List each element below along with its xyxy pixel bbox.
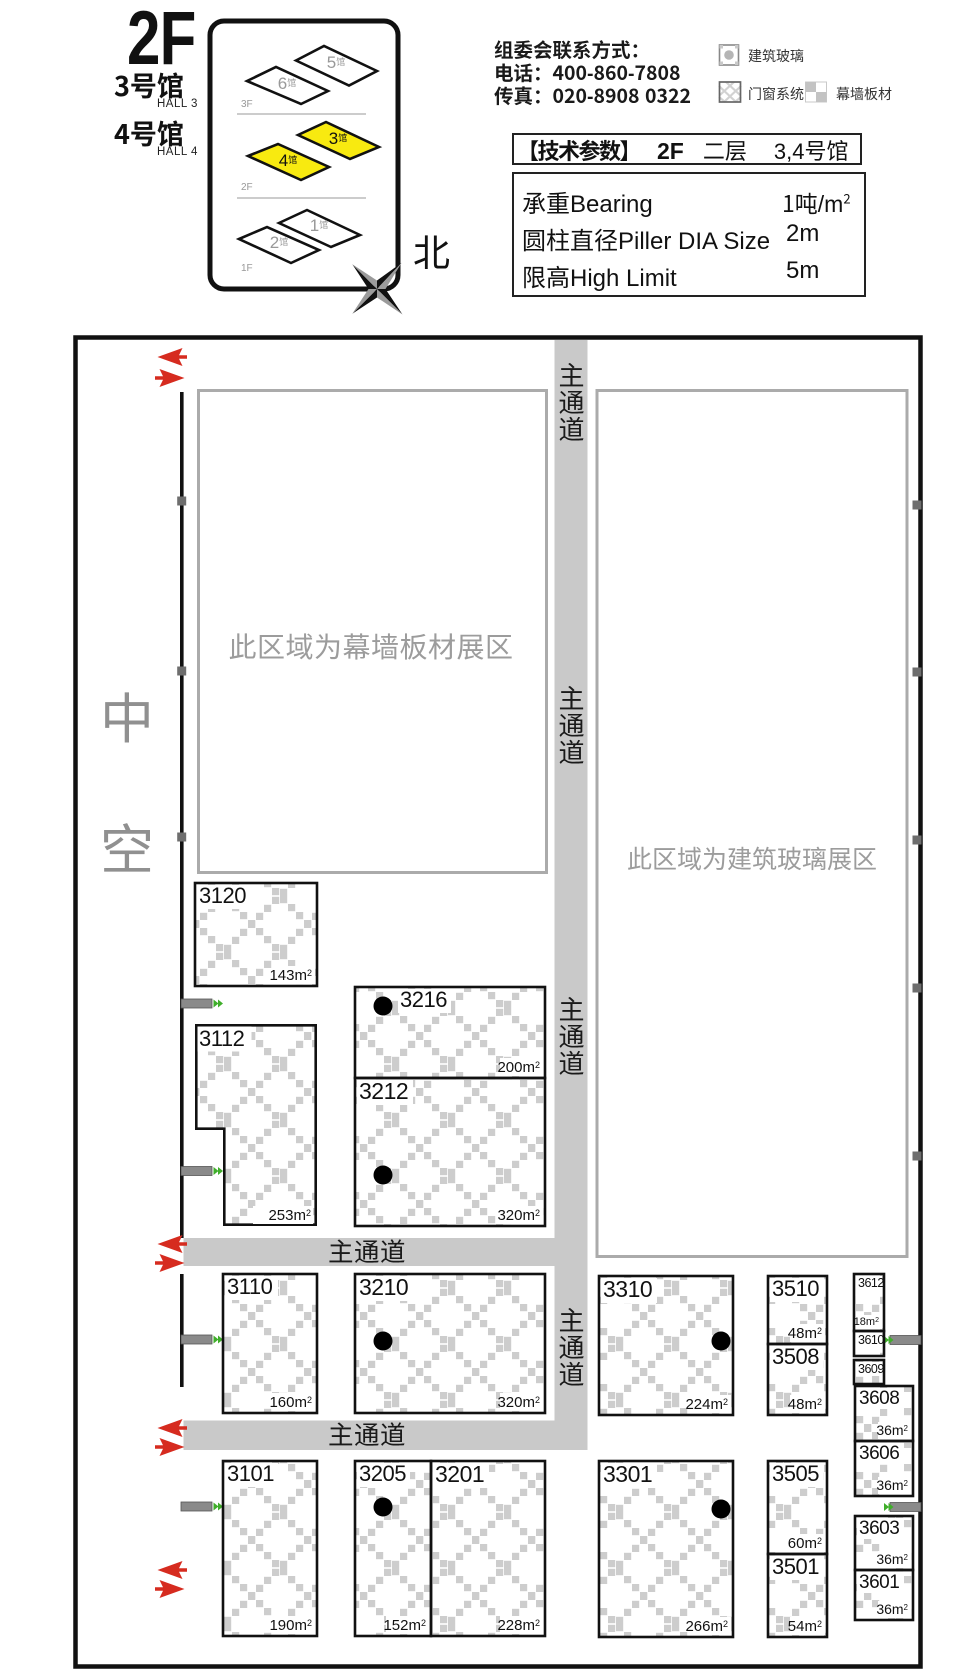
svg-text:3508: 3508 bbox=[772, 1344, 819, 1369]
svg-text:3606: 3606 bbox=[859, 1443, 899, 1464]
svg-text:3212: 3212 bbox=[359, 1078, 408, 1104]
svg-text:3F: 3F bbox=[241, 99, 253, 110]
svg-text:320m2: 320m2 bbox=[497, 1394, 540, 1411]
svg-text:190m2: 190m2 bbox=[269, 1617, 312, 1634]
svg-text:48m2: 48m2 bbox=[788, 1396, 822, 1413]
svg-text:道: 道 bbox=[558, 1355, 584, 1392]
svg-text:3120: 3120 bbox=[199, 883, 246, 908]
svg-text:224m2: 224m2 bbox=[685, 1396, 728, 1413]
svg-text:3216: 3216 bbox=[400, 987, 447, 1012]
svg-text:3205: 3205 bbox=[359, 1461, 406, 1486]
svg-text:3112: 3112 bbox=[199, 1026, 245, 1051]
svg-text:152m2: 152m2 bbox=[383, 1617, 426, 1634]
svg-text:空: 空 bbox=[100, 806, 154, 885]
svg-text:253m2: 253m2 bbox=[268, 1207, 311, 1224]
svg-text:143m2: 143m2 bbox=[269, 967, 312, 984]
svg-text:3210: 3210 bbox=[359, 1274, 408, 1300]
svg-text:160m2: 160m2 bbox=[269, 1394, 312, 1411]
svg-text:48m2: 48m2 bbox=[788, 1325, 822, 1342]
svg-text:3609: 3609 bbox=[858, 1362, 884, 1376]
svg-text:此区域为建筑玻璃展区: 此区域为建筑玻璃展区 bbox=[627, 840, 877, 876]
svg-text:3110: 3110 bbox=[227, 1274, 273, 1299]
svg-text:320m2: 320m2 bbox=[497, 1207, 540, 1224]
svg-text:3610: 3610 bbox=[858, 1333, 884, 1347]
svg-text:3501: 3501 bbox=[772, 1554, 819, 1579]
svg-text:60m2: 60m2 bbox=[788, 1535, 822, 1552]
svg-text:3201: 3201 bbox=[435, 1461, 484, 1487]
svg-text:266m2: 266m2 bbox=[685, 1618, 728, 1635]
svg-text:2F: 2F bbox=[241, 182, 253, 193]
svg-text:3612: 3612 bbox=[858, 1276, 884, 1290]
svg-text:228m2: 228m2 bbox=[497, 1617, 540, 1634]
svg-text:3101: 3101 bbox=[227, 1461, 274, 1486]
svg-text:主通道: 主通道 bbox=[328, 1232, 406, 1269]
svg-text:3505: 3505 bbox=[772, 1461, 819, 1486]
svg-text:中: 中 bbox=[100, 675, 154, 754]
svg-text:1F: 1F bbox=[241, 263, 253, 274]
svg-text:此区域为幕墙板材展区: 此区域为幕墙板材展区 bbox=[228, 626, 513, 666]
svg-text:3603: 3603 bbox=[859, 1518, 899, 1539]
svg-text:3601: 3601 bbox=[859, 1572, 899, 1593]
svg-text:北: 北 bbox=[413, 223, 450, 277]
svg-text:3510: 3510 bbox=[772, 1276, 819, 1301]
svg-text:3301: 3301 bbox=[603, 1461, 652, 1487]
svg-text:道: 道 bbox=[558, 1044, 584, 1081]
svg-text:主通道: 主通道 bbox=[328, 1415, 406, 1452]
svg-text:道: 道 bbox=[558, 410, 584, 447]
svg-text:道: 道 bbox=[558, 733, 584, 770]
svg-text:54m2: 54m2 bbox=[788, 1618, 822, 1635]
svg-text:3310: 3310 bbox=[603, 1276, 652, 1302]
svg-text:200m2: 200m2 bbox=[497, 1059, 540, 1076]
svg-text:3608: 3608 bbox=[859, 1388, 899, 1409]
